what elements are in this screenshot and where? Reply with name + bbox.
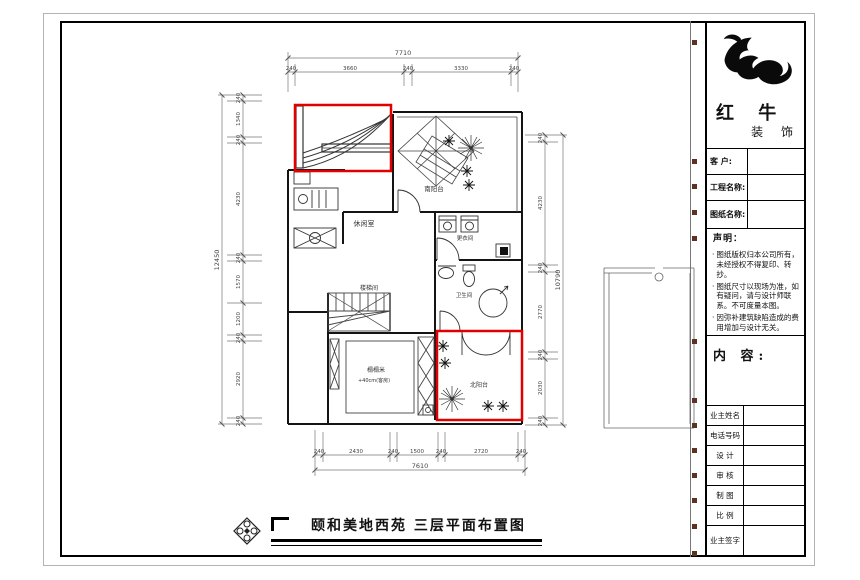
svg-text:240: 240 bbox=[436, 449, 447, 455]
svg-text:240: 240 bbox=[314, 449, 325, 455]
title-underline-group: 颐和美地西苑 三层平面布置图 bbox=[271, 514, 542, 542]
statement-item: 因弥补建筑缺陷造成的费用增加与设计无关。 bbox=[712, 313, 802, 333]
binding-mark bbox=[692, 423, 697, 428]
svg-text:240: 240 bbox=[403, 66, 414, 72]
binding-mark bbox=[692, 210, 697, 215]
statement-section: 声明： 图纸版权归本公司所有，未经授权不得复印、转抄。 图纸尺寸以现场为准，如有… bbox=[707, 229, 804, 335]
customer-value-field bbox=[747, 149, 804, 174]
row-draft: 制 图 bbox=[707, 486, 804, 506]
svg-text:2920: 2920 bbox=[236, 372, 242, 386]
customer-label: 客 户: bbox=[707, 149, 747, 174]
statement-heading: 声明： bbox=[713, 234, 802, 246]
dim-bottom-total: 7610 bbox=[412, 462, 429, 470]
plant-icon bbox=[439, 386, 465, 412]
drawing-sheet: { "doc": { "bottom_title": "颐和美地西苑 三层平面布… bbox=[0, 0, 860, 580]
curved-terrace bbox=[296, 106, 392, 168]
brand-subname: 装 饰 bbox=[751, 123, 800, 140]
svg-text:4230: 4230 bbox=[538, 196, 544, 210]
owner-name-field bbox=[744, 406, 804, 425]
binding-mark bbox=[692, 184, 697, 189]
drawing-value-field bbox=[747, 201, 804, 228]
plant-icon bbox=[463, 179, 475, 191]
row-review: 审 核 bbox=[707, 466, 804, 486]
room-label-tatami-note: +40cm(客房) bbox=[358, 377, 390, 384]
dim-right-total: 10790 bbox=[554, 270, 562, 291]
binding-mark bbox=[692, 551, 697, 556]
svg-text:1500: 1500 bbox=[410, 449, 424, 455]
statement-item: 图纸尺寸以现场为准，如有疑问，请与设计师联系。不可度量本图。 bbox=[712, 282, 802, 312]
svg-text:1340: 1340 bbox=[236, 112, 242, 126]
row-owner-name: 业主姓名 bbox=[707, 406, 804, 426]
review-field bbox=[744, 466, 804, 485]
adjacent-roof-outline bbox=[604, 268, 694, 428]
binding-mark bbox=[692, 398, 697, 403]
drawing-label: 图纸名称: bbox=[707, 201, 747, 228]
svg-text:240: 240 bbox=[538, 132, 544, 143]
gym-equipment bbox=[294, 172, 338, 248]
draft-field bbox=[744, 486, 804, 505]
plant-icon bbox=[439, 357, 451, 369]
plant-icon bbox=[482, 400, 494, 412]
binding-mark bbox=[692, 524, 697, 529]
plant-icon bbox=[437, 340, 449, 352]
title-block: 红 牛 装 饰 客 户: 工程名称: 图纸名称: 声明： 图纸版权归本公司所有，… bbox=[705, 21, 806, 557]
ornament-icon bbox=[232, 516, 262, 546]
dim-left-total: 12450 bbox=[213, 250, 221, 271]
drawing-title-bar: 颐和美地西苑 三层平面布置图 bbox=[232, 514, 542, 546]
row-phone: 电话号码 bbox=[707, 426, 804, 446]
binding-mark bbox=[692, 236, 697, 241]
svg-text:1570: 1570 bbox=[236, 275, 242, 289]
svg-text:240: 240 bbox=[286, 66, 297, 72]
drawing-title: 颐和美地西苑 三层平面布置图 bbox=[301, 514, 542, 536]
field-project: 工程名称: bbox=[707, 175, 804, 201]
svg-text:240: 240 bbox=[538, 262, 544, 273]
sign-field bbox=[744, 526, 804, 555]
svg-text:4230: 4230 bbox=[236, 192, 242, 206]
room-label-dressing: 更衣间 bbox=[457, 234, 474, 242]
svg-text:240: 240 bbox=[236, 92, 242, 103]
room-label-south-balcony: 南阳台 bbox=[424, 184, 444, 193]
binding-mark bbox=[692, 159, 697, 164]
svg-text:240: 240 bbox=[236, 252, 242, 263]
plant-icon bbox=[458, 135, 484, 161]
svg-text:2770: 2770 bbox=[538, 305, 544, 319]
room-label-leisure: 休闲室 bbox=[354, 219, 375, 228]
svg-text:2030: 2030 bbox=[538, 381, 544, 395]
room-label-north-balcony: 北阳台 bbox=[470, 381, 488, 389]
row-scale: 比 例 bbox=[707, 506, 804, 526]
phone-field bbox=[744, 426, 804, 445]
field-customer: 客 户: bbox=[707, 149, 804, 175]
binding-mark bbox=[692, 339, 697, 344]
bathroom-fixtures bbox=[438, 265, 508, 317]
svg-text:240: 240 bbox=[236, 332, 242, 343]
room-label-tatami: 榻榻米 bbox=[367, 366, 385, 374]
svg-text:240: 240 bbox=[538, 349, 544, 360]
walls bbox=[288, 112, 522, 424]
svg-text:1200: 1200 bbox=[236, 312, 242, 326]
svg-text:3660: 3660 bbox=[343, 66, 357, 72]
dim-top-total: 7710 bbox=[395, 49, 412, 57]
svg-text:240: 240 bbox=[236, 134, 242, 145]
binding-mark bbox=[692, 473, 697, 478]
project-value-field bbox=[747, 175, 804, 200]
highlight-box-north-balcony bbox=[437, 331, 522, 420]
binding-mark bbox=[692, 40, 697, 45]
binding-mark bbox=[692, 498, 697, 503]
title-bracket bbox=[271, 517, 289, 531]
row-design: 设 计 bbox=[707, 446, 804, 466]
binding-mark bbox=[692, 448, 697, 453]
field-drawing: 图纸名称: bbox=[707, 201, 804, 229]
staircase bbox=[328, 293, 390, 331]
svg-text:240: 240 bbox=[516, 449, 527, 455]
project-label: 工程名称: bbox=[707, 175, 747, 200]
room-label-bath: 卫生间 bbox=[456, 291, 473, 299]
svg-text:240: 240 bbox=[236, 415, 242, 426]
dimension-top bbox=[286, 52, 521, 92]
brand-name: 红 牛 bbox=[716, 99, 785, 125]
bull-logo-icon bbox=[715, 27, 799, 95]
svg-text:240: 240 bbox=[538, 415, 544, 426]
svg-text:3330: 3330 bbox=[454, 66, 468, 72]
scale-field bbox=[744, 506, 804, 525]
tatami-room bbox=[330, 337, 434, 415]
svg-text:240: 240 bbox=[388, 449, 399, 455]
row-owner-sign: 业主签字 bbox=[707, 526, 804, 555]
design-field bbox=[744, 446, 804, 465]
plant-icon bbox=[497, 400, 509, 412]
svg-text:2430: 2430 bbox=[349, 449, 363, 455]
content-heading: 内 容: bbox=[707, 335, 804, 406]
svg-text:240: 240 bbox=[509, 66, 520, 72]
statement-item: 图纸版权归本公司所有，未经授权不得复印、转抄。 bbox=[712, 250, 802, 280]
plant-icon bbox=[443, 135, 455, 147]
laundry-appliances bbox=[439, 216, 510, 257]
room-label-stair: 楼梯间 bbox=[360, 284, 378, 292]
company-logo-area: 红 牛 装 饰 bbox=[707, 23, 804, 149]
signature-rows: 业主姓名 电话号码 设 计 审 核 制 图 比 例 业主签字 bbox=[707, 406, 804, 555]
svg-text:2720: 2720 bbox=[474, 449, 488, 455]
